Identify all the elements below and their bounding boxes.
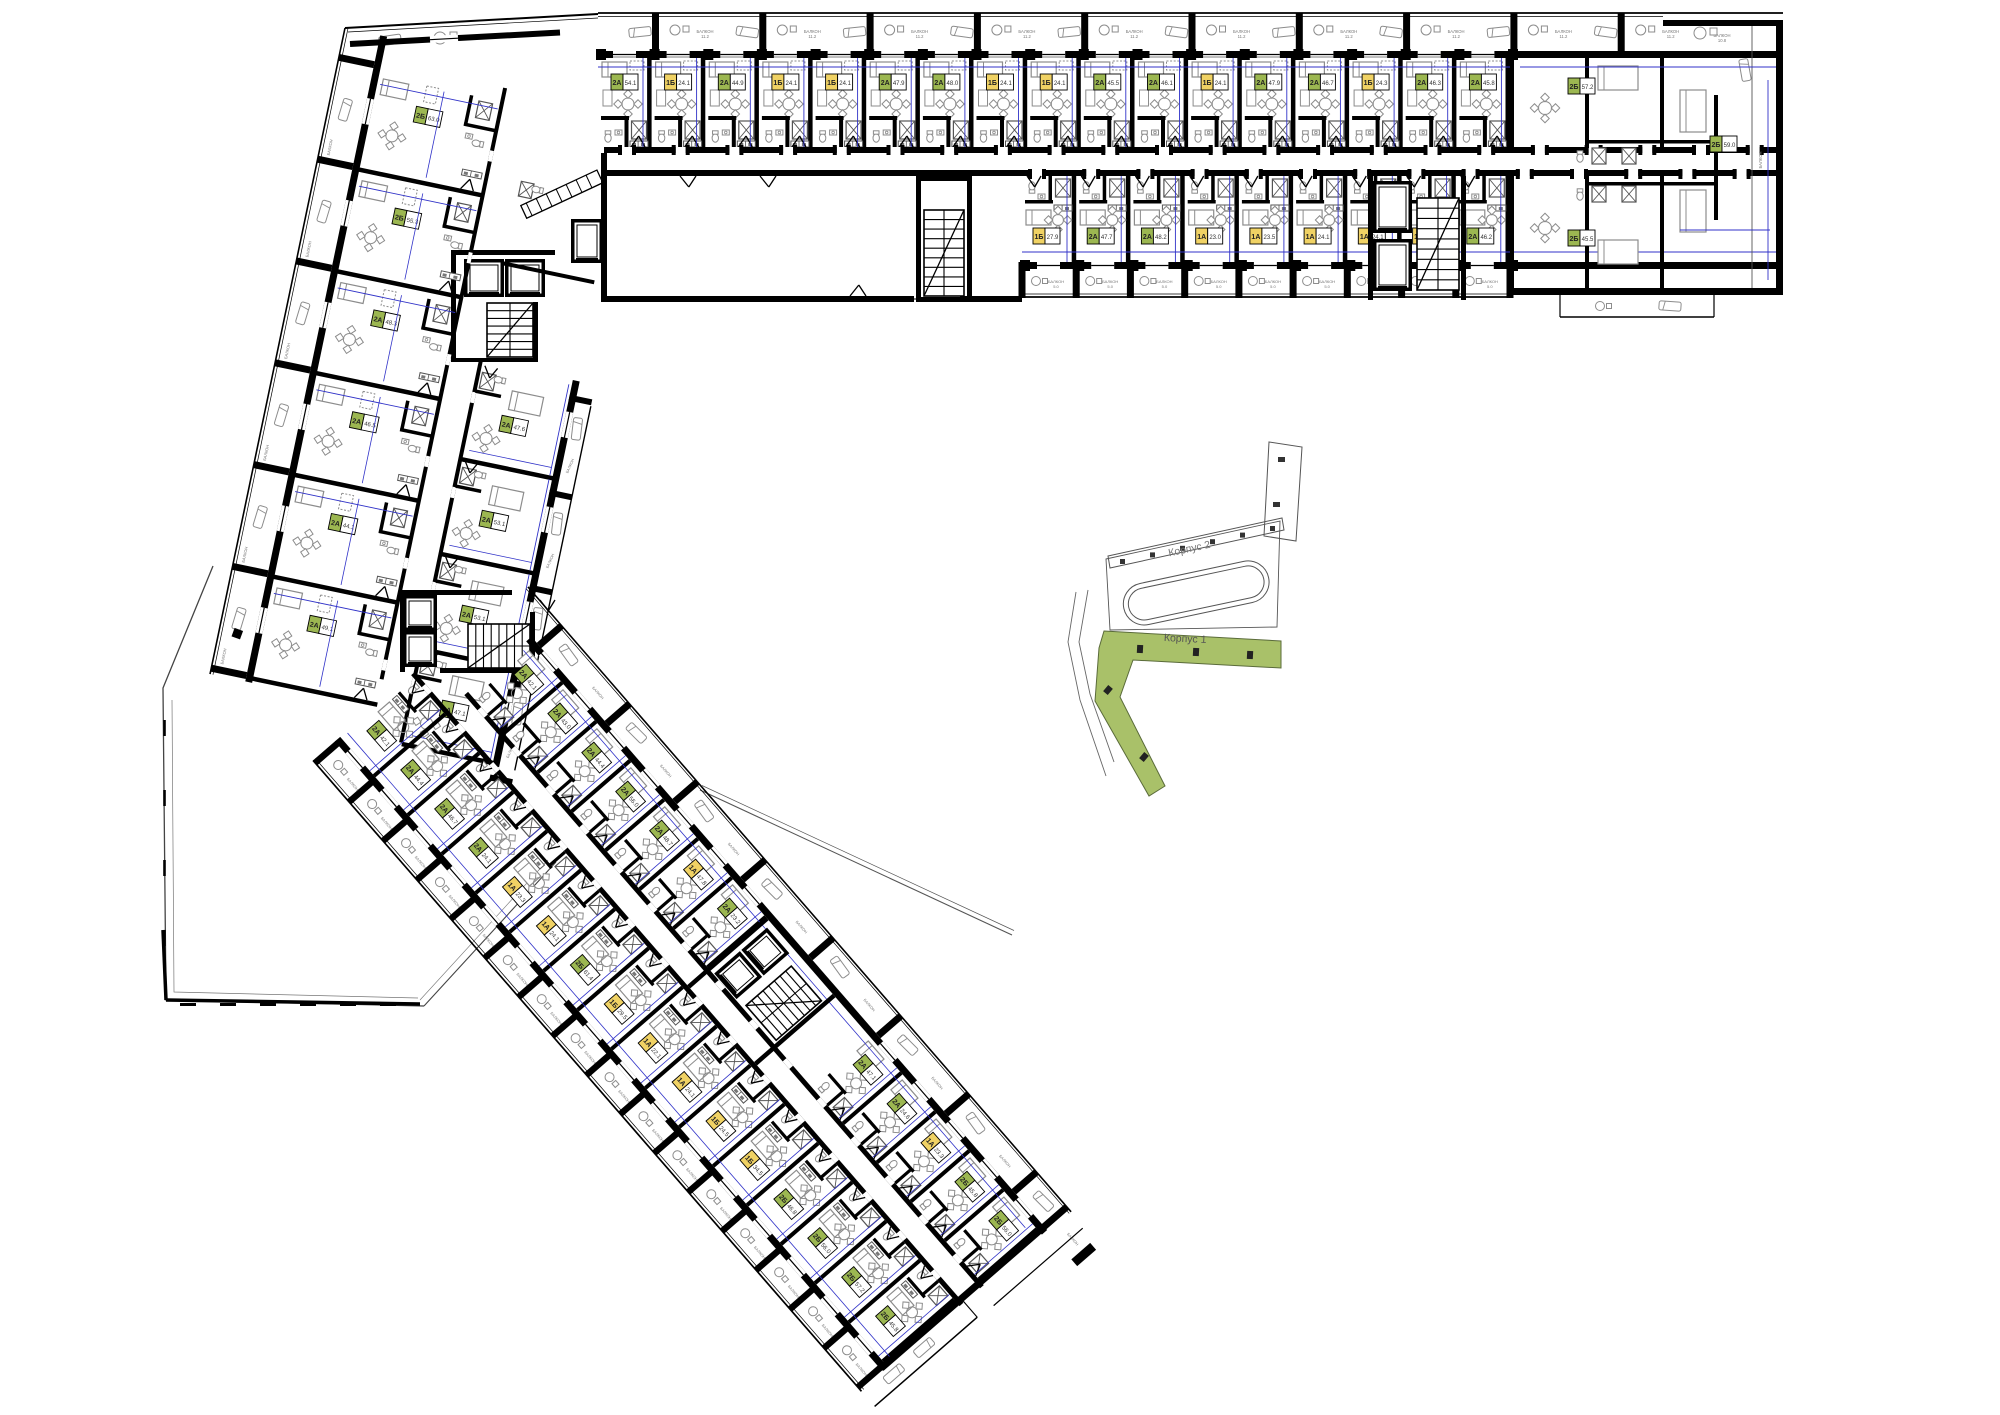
svg-text:Корпус 1: Корпус 1 bbox=[1164, 632, 1207, 646]
svg-text:45.5: 45.5 bbox=[1582, 237, 1594, 243]
svg-text:11.2: 11.2 bbox=[1238, 34, 1247, 39]
svg-text:1Б: 1Б bbox=[1203, 80, 1212, 87]
svg-text:24.1: 24.1 bbox=[786, 81, 798, 87]
svg-text:11.2: 11.2 bbox=[1559, 34, 1568, 39]
svg-text:5.0: 5.0 bbox=[1162, 284, 1168, 289]
svg-text:2A: 2A bbox=[720, 80, 729, 87]
svg-text:46.2: 46.2 bbox=[1480, 235, 1492, 241]
svg-text:1Б: 1Б bbox=[827, 80, 836, 87]
svg-text:2A: 2A bbox=[1310, 80, 1319, 87]
svg-text:23.5: 23.5 bbox=[1264, 235, 1276, 241]
svg-text:48.2: 48.2 bbox=[1155, 235, 1167, 241]
svg-text:2A: 2A bbox=[934, 80, 943, 87]
svg-text:54.1: 54.1 bbox=[625, 81, 637, 87]
svg-text:24.1: 24.1 bbox=[1215, 81, 1227, 87]
svg-text:1Б: 1Б bbox=[666, 80, 675, 87]
svg-text:2Б: 2Б bbox=[1712, 142, 1721, 149]
svg-text:2A: 2A bbox=[613, 80, 622, 87]
svg-text:23.0: 23.0 bbox=[1209, 235, 1221, 241]
svg-text:2A: 2A bbox=[1143, 234, 1152, 241]
svg-text:1Б: 1Б bbox=[1035, 234, 1044, 241]
svg-text:24.1: 24.1 bbox=[1318, 235, 1330, 241]
svg-text:11.2: 11.2 bbox=[701, 34, 710, 39]
svg-text:1Б: 1Б bbox=[988, 80, 997, 87]
svg-text:24.1: 24.1 bbox=[678, 81, 690, 87]
svg-text:44.9: 44.9 bbox=[732, 81, 744, 87]
svg-text:24.1: 24.1 bbox=[1000, 81, 1012, 87]
svg-text:46.1: 46.1 bbox=[1161, 81, 1173, 87]
svg-text:47.7: 47.7 bbox=[1101, 235, 1113, 241]
svg-text:2A: 2A bbox=[881, 80, 890, 87]
svg-text:1Б: 1Б bbox=[1042, 80, 1051, 87]
svg-text:2A: 2A bbox=[1095, 80, 1104, 87]
svg-text:24.1: 24.1 bbox=[839, 81, 851, 87]
svg-text:57.2: 57.2 bbox=[1582, 85, 1594, 91]
svg-text:11.2: 11.2 bbox=[916, 34, 925, 39]
svg-text:1Б: 1Б bbox=[773, 80, 782, 87]
svg-text:5.0: 5.0 bbox=[1487, 284, 1493, 289]
svg-text:2A: 2A bbox=[1468, 234, 1477, 241]
svg-text:5.0: 5.0 bbox=[1107, 284, 1113, 289]
svg-text:2Б: 2Б bbox=[1570, 84, 1579, 91]
svg-text:45.5: 45.5 bbox=[1107, 81, 1119, 87]
svg-text:11.2: 11.2 bbox=[1667, 34, 1676, 39]
svg-text:1A: 1A bbox=[1251, 234, 1260, 241]
svg-text:2A: 2A bbox=[1471, 80, 1480, 87]
svg-text:5.0: 5.0 bbox=[1053, 284, 1059, 289]
svg-text:27.9: 27.9 bbox=[1047, 235, 1059, 241]
svg-text:1A: 1A bbox=[1306, 234, 1315, 241]
svg-text:2A: 2A bbox=[1256, 80, 1265, 87]
svg-text:2A: 2A bbox=[1149, 80, 1158, 87]
svg-text:11.2: 11.2 bbox=[1023, 34, 1032, 39]
svg-text:1A: 1A bbox=[1360, 234, 1369, 241]
svg-text:5.0: 5.0 bbox=[1324, 284, 1330, 289]
svg-text:11.2: 11.2 bbox=[1452, 34, 1461, 39]
svg-text:48.0: 48.0 bbox=[947, 81, 959, 87]
svg-text:46.7: 46.7 bbox=[1322, 81, 1334, 87]
svg-text:БАЛКОН: БАЛКОН bbox=[1758, 152, 1763, 169]
svg-text:11.2: 11.2 bbox=[808, 34, 817, 39]
svg-text:2A: 2A bbox=[1417, 80, 1426, 87]
svg-text:10.8: 10.8 bbox=[1718, 38, 1727, 43]
svg-text:5.0: 5.0 bbox=[1270, 284, 1276, 289]
svg-text:47.9: 47.9 bbox=[893, 81, 905, 87]
svg-text:59.0: 59.0 bbox=[1724, 143, 1736, 149]
svg-text:46.3: 46.3 bbox=[1429, 81, 1441, 87]
svg-text:5.0: 5.0 bbox=[1216, 284, 1222, 289]
svg-text:11.2: 11.2 bbox=[1345, 34, 1354, 39]
svg-text:24.3: 24.3 bbox=[1376, 81, 1388, 87]
svg-text:45.8: 45.8 bbox=[1483, 81, 1495, 87]
svg-text:2A: 2A bbox=[1089, 234, 1098, 241]
svg-text:47.9: 47.9 bbox=[1268, 81, 1280, 87]
svg-text:2Б: 2Б bbox=[1570, 236, 1579, 243]
svg-text:11.2: 11.2 bbox=[1130, 34, 1139, 39]
svg-text:1A: 1A bbox=[1197, 234, 1206, 241]
svg-text:1Б: 1Б bbox=[1364, 80, 1373, 87]
svg-text:24.1: 24.1 bbox=[1054, 81, 1066, 87]
